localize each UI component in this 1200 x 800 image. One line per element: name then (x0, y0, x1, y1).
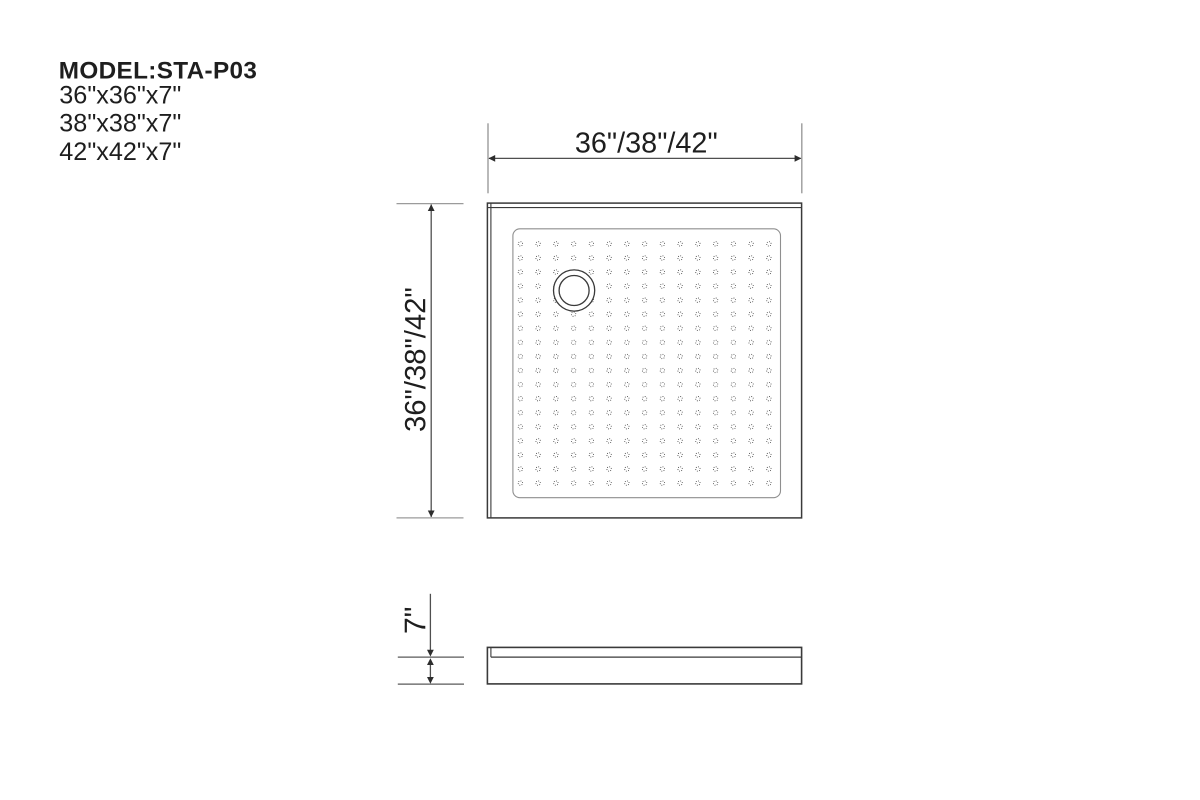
svg-text:MODEL:STA-P03: MODEL:STA-P03 (59, 58, 257, 85)
svg-text:42"x42"x7": 42"x42"x7" (59, 138, 181, 166)
svg-text:36"/38"/42": 36"/38"/42" (575, 127, 718, 159)
svg-text:36"x36"x7": 36"x36"x7" (59, 82, 181, 110)
svg-text:38"x38"x7": 38"x38"x7" (59, 110, 181, 138)
